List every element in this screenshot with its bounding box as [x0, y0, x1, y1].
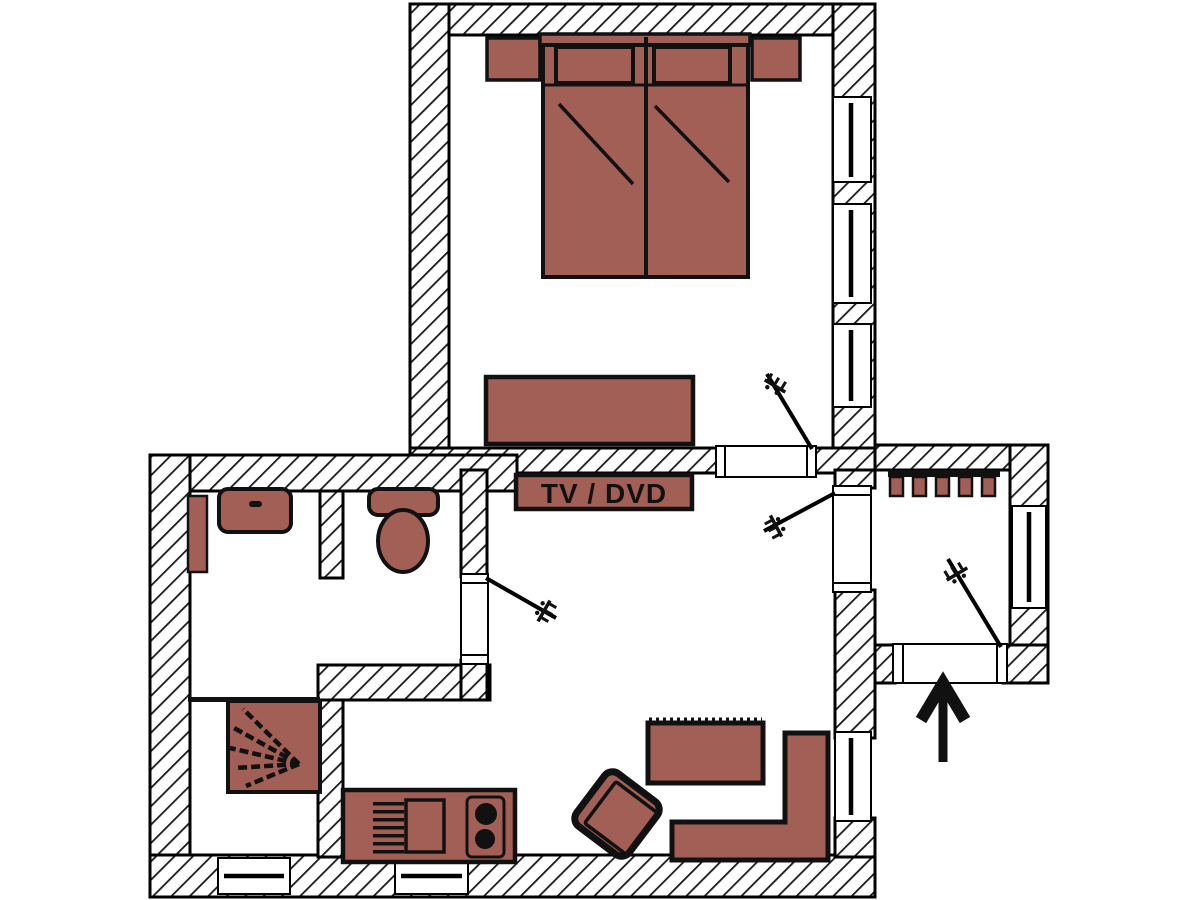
bathroom-sink — [219, 489, 291, 532]
hall-wall-south-right — [1003, 645, 1048, 683]
toilet-bowl — [378, 510, 428, 572]
entrance-door-handle-icon — [942, 560, 971, 586]
hall-living-door-cap-bottom — [833, 583, 871, 592]
entrance-arrow-icon — [921, 683, 965, 762]
coat-hook-1 — [890, 477, 903, 496]
pillow-left — [556, 47, 633, 83]
shower-tray — [228, 701, 320, 792]
bathroom-fixtures — [188, 489, 438, 792]
bedroom-wall-left — [410, 4, 449, 473]
coat-hook-5 — [982, 477, 995, 496]
coat-hook-2 — [913, 477, 926, 496]
bathroom-door-cap-top — [461, 574, 488, 583]
bathroom-door-frame — [461, 574, 488, 664]
dresser — [486, 377, 693, 444]
bathroom-wall-east-upper — [461, 470, 487, 577]
bathroom-door-cap-bottom — [461, 655, 488, 664]
bedroom-door-cap-right — [807, 446, 816, 477]
nightstand-right — [752, 38, 800, 80]
bedroom-door-frame — [716, 446, 816, 477]
coffee-table — [648, 723, 763, 783]
bathroom-wall-east-lower — [461, 660, 487, 700]
living-wall-right-c — [835, 818, 875, 857]
entrance-door-cap-left — [893, 644, 903, 683]
tv-dvd-label: TV / DVD — [541, 478, 667, 509]
bathroom-radiator — [188, 496, 207, 572]
bedroom-door-handle-icon — [761, 372, 790, 398]
living-wall-right-b — [835, 590, 875, 738]
coat-hook-4 — [959, 477, 972, 496]
hall-living-door-handle-icon — [762, 512, 788, 541]
bedroom-wall-top — [410, 4, 875, 35]
floor-plan-svg: TV / DVD — [0, 0, 1200, 900]
pillow-right — [654, 47, 730, 83]
stove-burner-1 — [475, 803, 497, 825]
coat-hook-3 — [936, 477, 949, 496]
stove-burner-2 — [475, 829, 495, 849]
sink-drain — [249, 501, 262, 507]
nightstand-left — [487, 38, 540, 80]
hall-living-door-cap-top — [833, 486, 871, 495]
bedroom-furniture — [486, 34, 800, 444]
hall-living-door-frame — [833, 486, 871, 592]
bathroom-door-handle-icon — [532, 597, 558, 626]
entrance-door-frame — [893, 644, 1007, 683]
bedroom-door-cap-left — [716, 446, 725, 477]
kitchen — [343, 790, 515, 862]
floor-plan: TV / DVD — [0, 0, 1200, 900]
exterior-wall-left — [150, 455, 190, 897]
bathroom-divider-stub — [320, 491, 343, 578]
entrance-door-cap-right — [997, 644, 1007, 683]
